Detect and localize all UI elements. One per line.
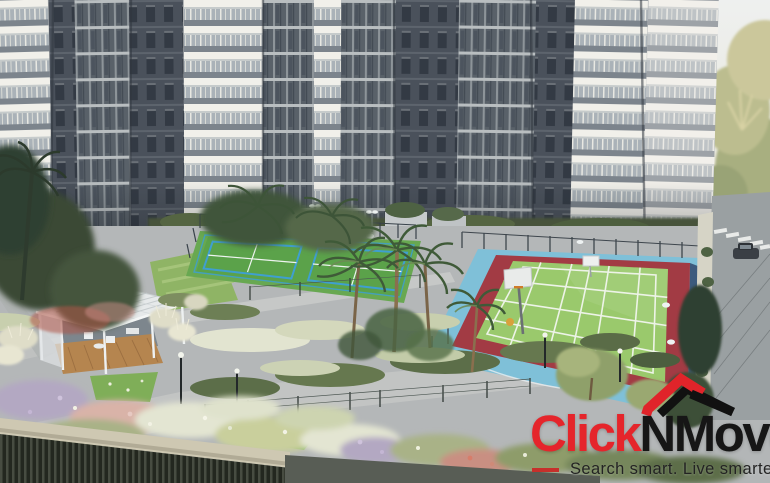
- apartment-complex-render: ClickNMove Search smart. Live smarter: [0, 0, 770, 483]
- scene-artwork: [0, 0, 770, 483]
